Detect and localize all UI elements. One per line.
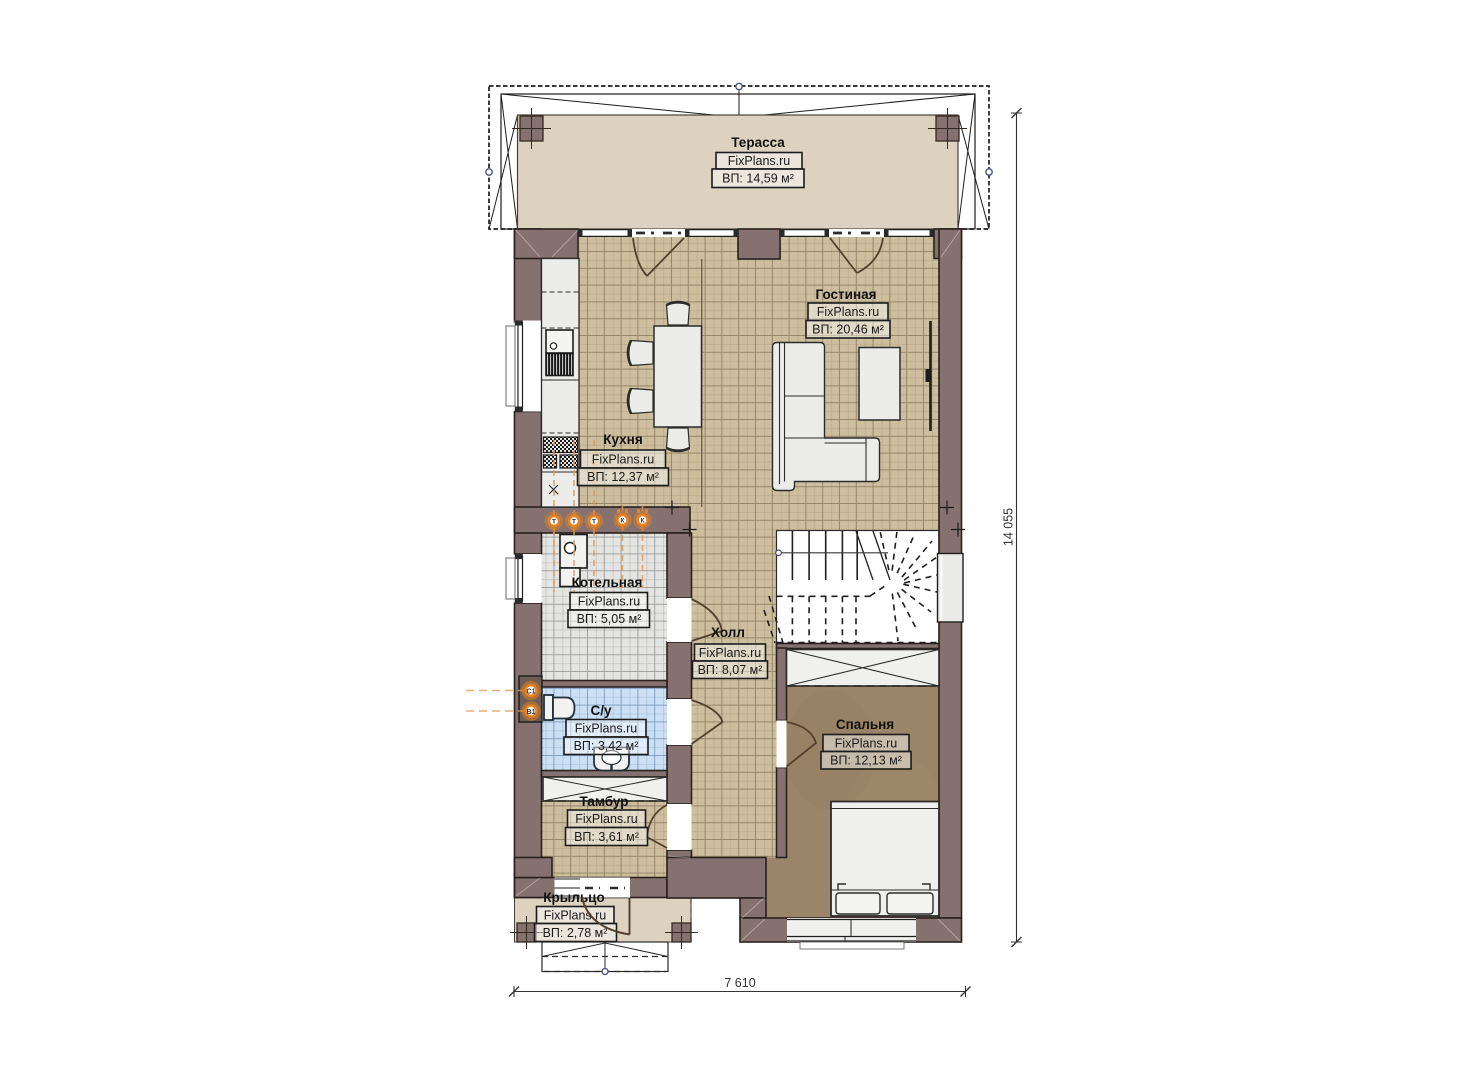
svg-text:ВП: 20,46 м²: ВП: 20,46 м² <box>812 323 884 337</box>
svg-text:Котельная: Котельная <box>572 575 643 590</box>
svg-text:Терасса: Терасса <box>731 135 785 150</box>
svg-text:Крыльцо: Крыльцо <box>543 890 604 905</box>
svg-text:Спальня: Спальня <box>836 717 894 732</box>
svg-text:Т: Т <box>552 519 556 526</box>
svg-text:7 610: 7 610 <box>724 976 755 990</box>
svg-text:FixPlans.ru: FixPlans.ru <box>575 812 638 826</box>
svg-text:FixPlans.ru: FixPlans.ru <box>578 595 641 609</box>
svg-text:ВП: 14,59 м²: ВП: 14,59 м² <box>722 172 794 186</box>
svg-text:Холл: Холл <box>711 625 745 640</box>
svg-text:ВП: 2,78 м²: ВП: 2,78 м² <box>543 926 608 940</box>
svg-text:ВП: 12,37 м²: ВП: 12,37 м² <box>587 470 659 484</box>
svg-text:ВП: 3,61 м²: ВП: 3,61 м² <box>574 830 639 844</box>
svg-text:Гостиная: Гостиная <box>815 287 876 302</box>
svg-text:В1: В1 <box>527 709 536 716</box>
svg-text:ВП: 8,07 м²: ВП: 8,07 м² <box>698 663 763 677</box>
svg-text:FixPlans.ru: FixPlans.ru <box>575 722 638 736</box>
svg-text:ВП: 12,13 м²: ВП: 12,13 м² <box>830 754 902 768</box>
svg-text:FixPlans.ru: FixPlans.ru <box>699 646 762 660</box>
svg-text:Т: Т <box>592 519 596 526</box>
svg-text:FixPlans.ru: FixPlans.ru <box>592 453 655 467</box>
svg-text:С/у: С/у <box>590 703 612 718</box>
svg-text:FixPlans.ru: FixPlans.ru <box>544 909 607 923</box>
svg-text:FixPlans.ru: FixPlans.ru <box>728 154 791 168</box>
svg-text:Кухня: Кухня <box>603 432 642 447</box>
svg-text:К: К <box>641 518 645 525</box>
svg-text:Т: Т <box>572 519 576 526</box>
svg-text:С1: С1 <box>527 689 536 696</box>
svg-text:ВП: 5,05 м²: ВП: 5,05 м² <box>577 612 642 626</box>
svg-text:К: К <box>621 518 625 525</box>
svg-text:Тамбур: Тамбур <box>580 794 629 809</box>
svg-text:ВП: 3,42 м²: ВП: 3,42 м² <box>574 739 639 753</box>
svg-text:FixPlans.ru: FixPlans.ru <box>835 737 898 751</box>
svg-text:FixPlans.ru: FixPlans.ru <box>817 305 880 319</box>
svg-text:14 055: 14 055 <box>1002 508 1016 546</box>
